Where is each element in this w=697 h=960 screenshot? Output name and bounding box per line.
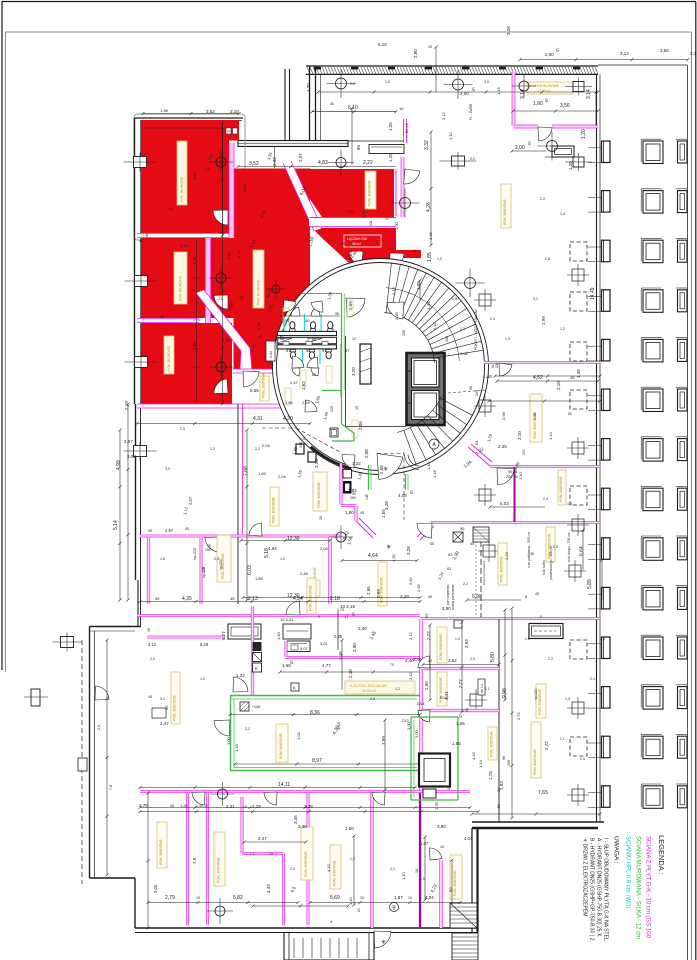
- svg-text:10: 10: [399, 106, 404, 111]
- svg-text:3,28: 3,28: [406, 546, 411, 555]
- svg-text:2,50: 2,50: [345, 826, 354, 831]
- svg-text:POM. BIUROWE: POM. BIUROWE: [279, 732, 283, 759]
- svg-text:2,46: 2,46: [428, 231, 433, 240]
- svg-text:1,2: 1,2: [280, 557, 285, 561]
- svg-text:2,13: 2,13: [248, 596, 258, 602]
- svg-text:2,4: 2,4: [490, 317, 495, 321]
- svg-text:+0,58: +0,58: [252, 705, 260, 709]
- svg-text:51: 51: [285, 318, 290, 323]
- svg-text:88: 88: [312, 338, 316, 342]
- svg-text:POK. BIUROWE: POK. BIUROWE: [257, 279, 261, 305]
- svg-text:10 3,01: 10 3,01: [280, 617, 294, 622]
- svg-text:145: 145: [365, 494, 369, 500]
- svg-text:1,5: 1,5: [168, 207, 173, 211]
- svg-text:45: 45: [185, 527, 189, 531]
- svg-text:6,55: 6,55: [250, 388, 259, 393]
- svg-text:POM. BIUROWE: POM. BIUROWE: [304, 850, 308, 877]
- svg-text:45: 45: [258, 335, 262, 339]
- svg-text:55: 55: [430, 542, 434, 546]
- svg-text:2,04: 2,04: [262, 443, 271, 448]
- svg-text:50: 50: [497, 804, 501, 808]
- svg-text:1,87: 1,87: [420, 841, 429, 846]
- svg-text:1,05: 1,05: [338, 242, 345, 246]
- svg-text:1,4: 1,4: [455, 637, 460, 641]
- svg-text:4,04: 4,04: [464, 836, 473, 841]
- svg-text:BK 4-3: BK 4-3: [480, 683, 484, 693]
- svg-text:POM. BIUROWE: POM. BIUROWE: [159, 838, 163, 865]
- svg-text:1,78: 1,78: [434, 801, 439, 810]
- svg-text:POM. BIUROWE: POM. BIUROWE: [368, 179, 372, 206]
- svg-text:28 m2: 28 m2: [352, 242, 361, 246]
- svg-text:1,00: 1,00: [361, 209, 366, 218]
- svg-text:2,18: 2,18: [330, 596, 340, 602]
- svg-text:2,1: 2,1: [218, 297, 223, 301]
- svg-text:14,49: 14,49: [590, 287, 596, 300]
- svg-text:5,80: 5,80: [490, 652, 496, 662]
- svg-text:7,8: 7,8: [109, 785, 113, 790]
- svg-text:h do sufitu: h do sufitu: [542, 560, 546, 575]
- svg-text:4,31: 4,31: [253, 416, 263, 422]
- svg-text:POK. BIUROWE: POK. BIUROWE: [179, 275, 183, 301]
- svg-text:1,98: 1,98: [160, 108, 169, 113]
- svg-text:2,48: 2,48: [300, 571, 309, 576]
- svg-text:4,04: 4,04: [425, 895, 434, 900]
- svg-text:3,41: 3,41: [444, 691, 449, 700]
- svg-text:3,12: 3,12: [148, 642, 157, 647]
- svg-text:5,03: 5,03: [500, 501, 509, 506]
- svg-text:6,90: 6,90: [472, 594, 482, 600]
- svg-text:12,30: 12,30: [287, 536, 300, 542]
- svg-text:2,1: 2,1: [330, 427, 335, 431]
- svg-text:1,78: 1,78: [488, 771, 493, 780]
- svg-text:2,99: 2,99: [541, 316, 546, 325]
- svg-text:55: 55: [460, 526, 465, 531]
- svg-text:2,69: 2,69: [416, 583, 421, 592]
- svg-text:1,1: 1,1: [250, 852, 255, 856]
- svg-text:B - HYDRANT DN25 (GSHP+GP-75: B - HYDRANT DN25 (GSHP+GP-750-B.30 ) 2: [589, 838, 595, 941]
- svg-text:1,3: 1,3: [565, 697, 570, 701]
- svg-text:1,80: 1,80: [345, 510, 354, 515]
- svg-text:2,35: 2,35: [334, 634, 343, 639]
- svg-text:1,65: 1,65: [258, 471, 267, 476]
- svg-text:2,2: 2,2: [463, 582, 468, 586]
- svg-text:port segmento: port segmento: [446, 584, 450, 605]
- svg-text:3,56: 3,56: [660, 48, 669, 53]
- svg-text:1,60: 1,60: [276, 631, 281, 640]
- svg-text:55: 55: [424, 613, 429, 618]
- svg-text:2,04: 2,04: [302, 400, 311, 405]
- svg-text:1,00: 1,00: [296, 731, 301, 740]
- svg-text:3,90: 3,90: [442, 606, 451, 611]
- svg-text:4,20: 4,20: [283, 416, 293, 422]
- svg-text:4,28: 4,28: [192, 256, 197, 265]
- svg-text:1,55: 1,55: [452, 741, 461, 746]
- svg-text:10: 10: [360, 896, 364, 900]
- svg-text:1,15: 1,15: [496, 86, 501, 95]
- svg-text:1,22: 1,22: [352, 461, 361, 466]
- svg-text:8,97: 8,97: [312, 758, 322, 764]
- svg-text:2,0: 2,0: [150, 657, 155, 661]
- svg-text:1,58: 1,58: [256, 321, 261, 330]
- svg-text:POM. BIUROWE: POM. BIUROWE: [317, 481, 321, 508]
- svg-text:1,20: 1,20: [388, 122, 393, 131]
- svg-text:PL - ZWBR: PL - ZWBR: [469, 103, 473, 120]
- svg-text:5,14: 5,14: [113, 520, 119, 530]
- svg-text:1,85: 1,85: [427, 252, 433, 262]
- svg-text:2,2: 2,2: [245, 727, 250, 731]
- svg-text:2,47: 2,47: [160, 721, 169, 726]
- svg-text:10: 10: [243, 805, 247, 809]
- svg-text:hp=220: hp=220: [219, 558, 223, 570]
- svg-text:200: 200: [475, 390, 479, 396]
- svg-text:2,0: 2,0: [553, 545, 558, 549]
- svg-text:hp=220: hp=220: [202, 567, 206, 578]
- svg-text:2,47: 2,47: [290, 380, 299, 385]
- svg-text:3,07: 3,07: [300, 646, 309, 651]
- svg-text:POKRYT - MOZLT STALOW: POKRYT - MOZLT STALOW: [474, 310, 478, 350]
- svg-text:2,90: 2,90: [424, 681, 429, 690]
- svg-text:2,40: 2,40: [358, 626, 367, 631]
- svg-text:h do stropu - 376 cm: h do stropu - 376 cm: [567, 532, 571, 562]
- svg-text:3,0: 3,0: [165, 467, 170, 471]
- svg-text:10: 10: [319, 516, 323, 520]
- svg-text:5,82: 5,82: [233, 895, 243, 901]
- svg-text:1,10: 1,10: [426, 461, 431, 470]
- svg-text:51: 51: [286, 348, 291, 353]
- svg-text:2,1: 2,1: [390, 867, 395, 871]
- svg-text:2,2: 2,2: [548, 657, 553, 661]
- svg-text:87: 87: [345, 348, 350, 353]
- svg-text:1,4: 1,4: [300, 437, 305, 441]
- svg-text:2,93: 2,93: [464, 639, 469, 648]
- svg-text:POM. BIUROWE: POM. BIUROWE: [173, 694, 177, 721]
- svg-text:✳ DRZWI Z ELEKTROZACZEPEM: ✳ DRZWI Z ELEKTROZACZEPEM: [582, 838, 588, 916]
- svg-text:2,65: 2,65: [379, 465, 384, 474]
- svg-text:2,79: 2,79: [165, 895, 175, 901]
- svg-text:3,20: 3,20: [351, 367, 356, 376]
- svg-text:2,5: 2,5: [370, 697, 375, 701]
- svg-text:1,62: 1,62: [301, 381, 306, 390]
- svg-text:3,14: 3,14: [620, 51, 629, 56]
- svg-text:1,9: 1,9: [505, 337, 510, 341]
- svg-text:2,10: 2,10: [556, 381, 561, 390]
- svg-text:200: 200: [205, 548, 211, 552]
- svg-text:50: 50: [305, 318, 310, 323]
- svg-text:45: 45: [139, 239, 143, 243]
- svg-text:1,38: 1,38: [576, 369, 581, 378]
- svg-text:10: 10: [408, 896, 412, 900]
- svg-text:1,2: 1,2: [600, 637, 605, 641]
- svg-text:6,10: 6,10: [378, 42, 387, 47]
- svg-text:7,65: 7,65: [538, 790, 548, 796]
- svg-text:4,15: 4,15: [326, 863, 331, 872]
- svg-text:145: 145: [330, 406, 334, 412]
- svg-text:45: 45: [330, 102, 334, 106]
- svg-text:POM. BIUROWE: POM. BIUROWE: [262, 371, 266, 398]
- svg-text:ŚCIANA Z PŁYT G-K - 10 cm (GS: ŚCIANA Z PŁYT G-K - 10 cm (GS 100: [645, 836, 653, 939]
- svg-text:2,06: 2,06: [358, 421, 363, 430]
- svg-text:ŚCIANKI HPL 0.8 cm (WD): ŚCIANKI HPL 0.8 cm (WD): [625, 836, 633, 908]
- svg-text:200: 200: [507, 760, 511, 766]
- svg-text:4,64: 4,64: [368, 553, 378, 559]
- svg-text:1,5: 1,5: [385, 80, 390, 84]
- svg-text:45: 45: [148, 695, 152, 699]
- svg-text:2,31: 2,31: [226, 804, 235, 809]
- svg-text:ŁĄCZNIK DW.: ŁĄCZNIK DW.: [347, 237, 367, 241]
- svg-text:4,94: 4,94: [293, 596, 303, 602]
- svg-text:2,2: 2,2: [470, 157, 475, 161]
- svg-text:2,00: 2,00: [515, 145, 525, 151]
- svg-text:90: 90: [502, 756, 506, 760]
- svg-text:14,11: 14,11: [278, 782, 290, 788]
- svg-text:2,80: 2,80: [413, 49, 418, 58]
- svg-text:powieszonego - 308 cm: powieszonego - 308 cm: [549, 546, 553, 580]
- svg-text:4,99: 4,99: [116, 460, 122, 470]
- svg-text:10 2,18: 10 2,18: [340, 604, 356, 609]
- svg-text:10: 10: [447, 786, 451, 790]
- svg-text:1,00: 1,00: [226, 736, 231, 745]
- svg-text:3,00: 3,00: [153, 884, 158, 893]
- svg-text:45: 45: [160, 315, 164, 319]
- svg-text:60: 60: [164, 705, 169, 710]
- svg-text:K: K: [293, 686, 296, 691]
- svg-text:45: 45: [428, 595, 432, 599]
- svg-text:45: 45: [239, 295, 244, 300]
- svg-text:POM. BIUROWE: POM. BIUROWE: [333, 859, 337, 886]
- svg-text:2,12: 2,12: [408, 631, 413, 640]
- svg-text:200 76: 200 76: [506, 475, 518, 479]
- svg-text:8,36: 8,36: [310, 710, 320, 716]
- svg-text:2,65: 2,65: [366, 586, 371, 595]
- svg-text:10: 10: [196, 896, 200, 900]
- svg-text:6,77: 6,77: [221, 631, 226, 640]
- svg-text:3,45: 3,45: [298, 824, 307, 829]
- svg-text:1,85: 1,85: [285, 400, 294, 405]
- svg-text:18: 18: [412, 249, 416, 253]
- svg-text:2,12: 2,12: [441, 111, 446, 120]
- svg-text:POM. BIUROWE: POM. BIUROWE: [559, 475, 563, 502]
- svg-text:3,01: 3,01: [320, 641, 329, 646]
- svg-text:45: 45: [147, 628, 151, 632]
- svg-text:100: 100: [402, 330, 406, 336]
- svg-text:10: 10: [440, 845, 444, 849]
- svg-text:2,2: 2,2: [205, 167, 210, 171]
- svg-text:D13: D13: [417, 701, 425, 706]
- svg-text:4,77: 4,77: [322, 663, 331, 668]
- svg-text:2,72: 2,72: [544, 741, 549, 750]
- svg-text:2,2: 2,2: [255, 447, 260, 451]
- svg-text:4,35: 4,35: [182, 596, 192, 602]
- svg-text:3,56: 3,56: [560, 103, 570, 109]
- svg-text:1,20: 1,20: [581, 129, 587, 139]
- svg-text:3,1: 3,1: [160, 697, 165, 701]
- svg-text:4,64: 4,64: [268, 546, 277, 551]
- svg-text:1,10: 1,10: [348, 896, 353, 905]
- svg-text:1,24: 1,24: [504, 551, 509, 560]
- svg-text:1,55: 1,55: [381, 509, 386, 518]
- svg-text:2,88: 2,88: [345, 209, 354, 214]
- svg-text:2,19: 2,19: [236, 249, 241, 258]
- svg-text:3,1: 3,1: [690, 51, 697, 56]
- svg-text:2,12: 2,12: [432, 321, 437, 330]
- svg-text:7,9: 7,9: [192, 857, 197, 864]
- svg-text:130: 130: [445, 336, 449, 342]
- svg-text:5: 5: [318, 615, 320, 619]
- svg-text:2,57: 2,57: [165, 528, 174, 533]
- svg-text:1,1: 1,1: [560, 737, 565, 741]
- svg-text:45: 45: [148, 529, 152, 533]
- svg-text:52: 52: [306, 348, 311, 353]
- svg-text:1,65: 1,65: [255, 576, 264, 581]
- svg-text:7,88: 7,88: [243, 466, 249, 476]
- svg-text:45: 45: [360, 511, 364, 515]
- svg-text:BK 4-1: BK 4-1: [405, 123, 409, 133]
- svg-text:54: 54: [474, 440, 479, 445]
- svg-text:2,5: 2,5: [97, 725, 101, 730]
- svg-text:2,12: 2,12: [408, 671, 413, 680]
- svg-text:1,18: 1,18: [234, 743, 239, 752]
- svg-text:10: 10: [415, 869, 419, 873]
- svg-text:51: 51: [322, 348, 327, 353]
- svg-text:1,08: 1,08: [460, 351, 469, 356]
- svg-text:D13: D13: [402, 719, 409, 723]
- svg-text:88: 88: [312, 373, 316, 377]
- svg-text:1,2: 1,2: [460, 327, 465, 331]
- svg-text:88: 88: [280, 337, 284, 341]
- svg-text:46: 46: [145, 234, 149, 238]
- svg-text:2,20: 2,20: [400, 594, 409, 599]
- svg-text:4,07: 4,07: [188, 496, 193, 505]
- svg-text:3,14: 3,14: [520, 89, 526, 99]
- svg-text:2,10: 2,10: [517, 431, 522, 440]
- svg-text:2,12: 2,12: [391, 286, 396, 295]
- svg-text:1,18: 1,18: [432, 469, 437, 478]
- svg-text:2,10: 2,10: [348, 669, 353, 678]
- svg-text:2,35: 2,35: [498, 444, 507, 449]
- svg-text:90: 90: [568, 412, 572, 416]
- svg-text:19.82 m2: 19.82 m2: [362, 689, 376, 693]
- svg-text:3,62: 3,62: [448, 658, 457, 663]
- svg-text:1,55: 1,55: [456, 721, 465, 726]
- svg-text:5,10: 5,10: [180, 243, 189, 248]
- svg-text:1,2: 1,2: [395, 687, 400, 691]
- svg-text:200: 200: [522, 449, 526, 455]
- svg-text:POM. BIUROWE: POM. BIUROWE: [439, 633, 443, 660]
- svg-text:1,2: 1,2: [200, 677, 205, 681]
- svg-text:200: 200: [350, 496, 356, 500]
- svg-text:POM. BIUROWE: POM. BIUROWE: [503, 198, 507, 225]
- svg-text:I - SŁUP OBUDOWANY PŁYTĄ G-K: I - SŁUP OBUDOWANY PŁYTĄ G-K NA STEL.: [603, 838, 609, 942]
- svg-text:1,00: 1,00: [394, 221, 399, 230]
- svg-text:2,9: 2,9: [452, 297, 457, 301]
- svg-text:o do podkladow - 335 cm: o do podkladow - 335 cm: [527, 532, 531, 568]
- svg-text:4,16: 4,16: [471, 751, 476, 760]
- svg-text:✳: ✳: [381, 939, 386, 946]
- svg-text:POK. BIUROWE: POK. BIUROWE: [167, 345, 171, 371]
- svg-text:4,08: 4,08: [398, 493, 407, 498]
- svg-text:ŚCIANA MUROWANA - SILKA - 12 c: ŚCIANA MUROWANA - SILKA - 12 cm: [635, 836, 643, 939]
- svg-text:6,64: 6,64: [579, 546, 585, 556]
- svg-text:12: 12: [352, 337, 356, 341]
- svg-text:2,07: 2,07: [298, 153, 303, 162]
- svg-text:2,46: 2,46: [394, 311, 399, 320]
- svg-text:1,2: 1,2: [210, 447, 215, 451]
- svg-text:3,45: 3,45: [293, 815, 298, 824]
- svg-text:2,40: 2,40: [405, 658, 414, 663]
- svg-text:1,0: 1,0: [437, 257, 442, 261]
- svg-text:1,1: 1,1: [485, 687, 490, 691]
- svg-text:2,65: 2,65: [408, 576, 413, 585]
- svg-text:2,0: 2,0: [580, 757, 585, 761]
- svg-text:1,48: 1,48: [483, 374, 492, 379]
- svg-text:10: 10: [465, 708, 469, 712]
- svg-text:45: 45: [535, 592, 539, 596]
- svg-text:2,2: 2,2: [540, 197, 545, 201]
- svg-text:1,82: 1,82: [348, 488, 357, 493]
- svg-text:2,69: 2,69: [376, 589, 381, 598]
- svg-text:1,2: 1,2: [560, 327, 565, 331]
- svg-text:83: 83: [448, 552, 453, 557]
- svg-text:6,10: 6,10: [348, 105, 358, 111]
- svg-text:POM. BIUROWE: POM. BIUROWE: [490, 730, 494, 757]
- svg-text:45: 45: [155, 596, 160, 601]
- svg-text:POM. BIUROWE: POM. BIUROWE: [533, 748, 537, 775]
- svg-text:UWAGA :: UWAGA :: [613, 836, 620, 864]
- svg-text:1,44: 1,44: [426, 301, 431, 310]
- svg-text:2,0: 2,0: [290, 867, 295, 871]
- svg-text:POM. BIUROWE: POM. BIUROWE: [272, 496, 276, 523]
- svg-text:2,8: 2,8: [545, 257, 550, 261]
- svg-text:✳: ✳: [386, 543, 392, 551]
- svg-text:2,0: 2,0: [350, 82, 355, 86]
- svg-text:4,94: 4,94: [192, 341, 197, 350]
- svg-text:1,0: 1,0: [525, 637, 530, 641]
- svg-text:10: 10: [357, 908, 361, 912]
- svg-text:1,18: 1,18: [336, 721, 341, 730]
- svg-text:1,10: 1,10: [401, 871, 406, 880]
- svg-text:hp=220: hp=220: [193, 548, 197, 560]
- svg-text:2,5: 2,5: [180, 427, 185, 431]
- svg-text:3,0: 3,0: [484, 80, 489, 84]
- svg-text:4.24-POK. SOCJALNE: 4.24-POK. SOCJALNE: [350, 684, 387, 688]
- svg-text:5: 5: [540, 615, 542, 619]
- svg-text:2,40: 2,40: [413, 657, 422, 662]
- svg-text:2,04: 2,04: [278, 474, 287, 479]
- svg-text:5,89: 5,89: [587, 579, 593, 589]
- svg-text:1,10: 1,10: [448, 131, 453, 140]
- svg-text:3,28: 3,28: [384, 501, 389, 510]
- svg-text:17: 17: [344, 614, 349, 619]
- svg-text:POM. BIUROWE: POM. BIUROWE: [217, 856, 221, 883]
- svg-text:1,00: 1,00: [414, 729, 419, 738]
- svg-text:12: 12: [385, 217, 389, 221]
- svg-text:2,57: 2,57: [124, 439, 133, 444]
- svg-text:1,10: 1,10: [548, 431, 553, 440]
- svg-text:3,82: 3,82: [242, 183, 247, 192]
- svg-text:2,98: 2,98: [532, 411, 537, 420]
- svg-text:10: 10: [269, 852, 273, 856]
- svg-text:POM. BIUROWE: POM. BIUROWE: [538, 688, 542, 715]
- svg-text:LEGENDA :: LEGENDA :: [657, 835, 666, 875]
- svg-text:1,15: 1,15: [388, 153, 393, 162]
- svg-text:70: 70: [390, 663, 394, 667]
- svg-text:4,43: 4,43: [266, 884, 271, 893]
- svg-text:45: 45: [470, 541, 475, 546]
- svg-text:A - HYDRANT DN25 (GSHP-750-B: A - HYDRANT DN25 (GSHP-750-B.30) 25 X.: [596, 838, 602, 938]
- svg-text:POK. BIUROWE: POK. BIUROWE: [180, 176, 184, 202]
- svg-text:10: 10: [428, 45, 432, 49]
- svg-text:45: 45: [230, 596, 235, 601]
